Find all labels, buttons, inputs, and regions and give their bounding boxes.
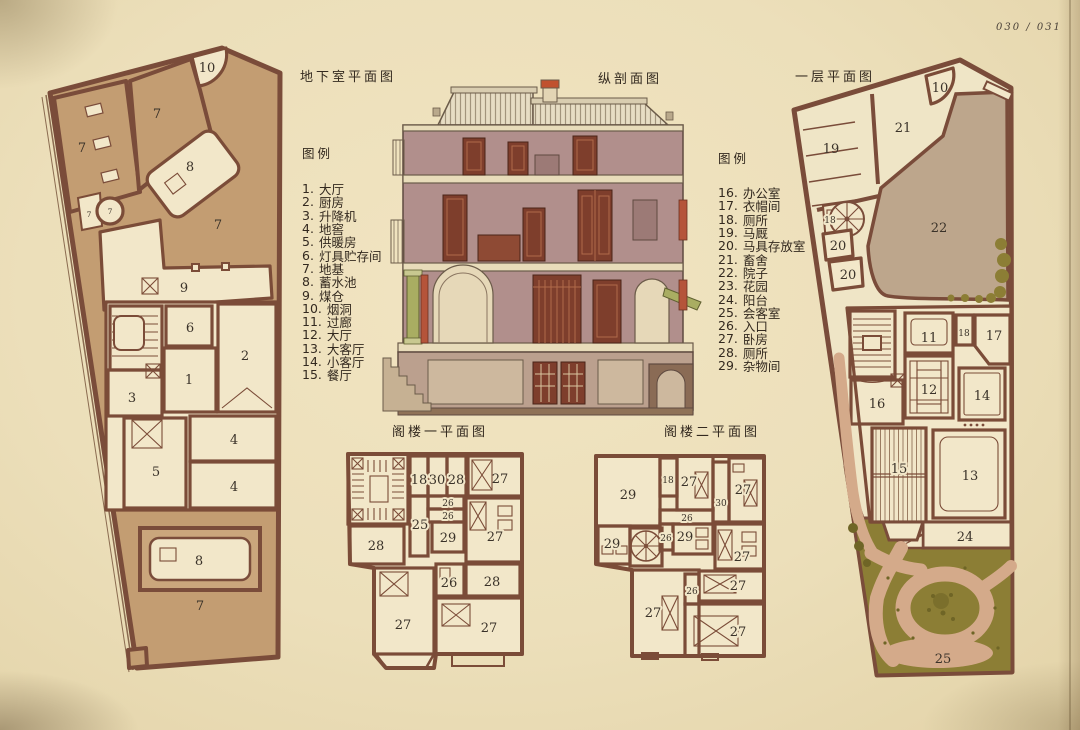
room-number-label: 11 xyxy=(921,331,938,346)
room-number-label: 26 xyxy=(442,499,454,509)
room-number-label: 7 xyxy=(87,210,92,219)
room-number-label: 30 xyxy=(429,473,446,488)
room-number-label: 27 xyxy=(395,618,412,633)
room-number-label: 18 xyxy=(411,473,428,488)
room-number-label: 4 xyxy=(230,480,238,495)
room-number-label: 28 xyxy=(484,575,501,590)
first-floor-plan-figure: 10 21 19 18 20 20 22 11 18 17 12 16 14 1… xyxy=(793,48,1080,708)
room-number-label: 8 xyxy=(186,160,194,175)
basement-vault-arch xyxy=(649,364,693,414)
legend-left-items: 1.大厅 2.厨房 3.升降机 4.地窖 5.供暖房 6.灯具贮存间 7.地基 … xyxy=(302,182,381,381)
room-number-label: 5 xyxy=(152,465,160,480)
room-number-label: 26 xyxy=(686,587,698,597)
room-number-label: 18 xyxy=(824,216,836,226)
legend-item-number: 29. xyxy=(718,358,738,373)
room-number-label: 7 xyxy=(108,207,113,216)
scan-shading-bottom-left xyxy=(0,670,140,730)
room-number-label: 27 xyxy=(730,579,747,594)
room-number-label: 10 xyxy=(199,61,216,76)
book-page: 030 / 031 地下室平面图 纵剖面图 一层平面图 阁楼一平面图 阁楼二平面… xyxy=(0,0,1080,730)
room-number-label: 29 xyxy=(604,537,621,552)
room-number-label: 17 xyxy=(986,329,1003,344)
attic1-plan-figure: 18 30 28 27 26 26 25 29 27 28 26 28 27 2… xyxy=(336,446,536,676)
basement-plan-figure: 10 7 7 8 7 7 7 9 6 2 1 3 5 4 4 8 7 xyxy=(42,40,292,670)
roof xyxy=(433,80,673,125)
room-number-label: 26 xyxy=(441,576,458,591)
room-number-label: 22 xyxy=(931,221,948,236)
room-number-label: 15 xyxy=(891,462,908,477)
room-number-label: 19 xyxy=(823,142,840,157)
room-number-label: 29 xyxy=(620,488,637,503)
room-number-label: 26 xyxy=(681,514,693,524)
room-number-label: 26 xyxy=(442,512,454,522)
green-column xyxy=(404,270,422,344)
title-basement-plan: 地下室平面图 xyxy=(300,66,396,85)
room-number-label: 27 xyxy=(492,472,509,487)
room-number-label: 28 xyxy=(448,473,465,488)
room-number-label: 14 xyxy=(974,389,991,404)
room-number-label: 7 xyxy=(153,107,161,122)
legend-item: 15.餐厅 xyxy=(302,368,381,381)
room-number-label: 12 xyxy=(921,383,938,398)
room-number-label: 24 xyxy=(957,530,974,545)
title-attic2-plan: 阁楼二平面图 xyxy=(664,421,760,440)
room-number-label: 21 xyxy=(895,121,912,136)
room-number-label: 4 xyxy=(230,433,238,448)
legend-left: 图例 1.大厅 2.厨房 3.升降机 4.地窖 5.供暖房 6.灯具贮存间 7.… xyxy=(302,143,381,381)
roof-finial xyxy=(433,108,440,116)
legend-left-title: 图例 xyxy=(302,143,381,162)
room-number-label: 27 xyxy=(735,483,752,498)
room-number-label: 27 xyxy=(734,550,751,565)
room-number-label: 16 xyxy=(869,397,886,412)
room-number-label: 7 xyxy=(78,141,86,156)
room-number-label: 27 xyxy=(481,621,498,636)
room-number-label: 3 xyxy=(128,391,136,406)
room-number-label: 27 xyxy=(645,606,662,621)
room-number-label: 20 xyxy=(830,239,847,254)
room-number-label: 18 xyxy=(662,476,674,486)
room-number-label: 7 xyxy=(196,599,204,614)
basement-level xyxy=(398,352,693,415)
room-number-label: 9 xyxy=(180,281,188,296)
room-number-label: 29 xyxy=(677,530,694,545)
room-number-label: 7 xyxy=(214,218,222,233)
room-number-label: 13 xyxy=(962,469,979,484)
room-number-label: 25 xyxy=(412,518,429,533)
attic2-plan-figure: 29 18 27 30 27 26 29 26 29 27 27 26 27 2… xyxy=(582,446,792,676)
room-number-label: 25 xyxy=(935,652,952,667)
legend-item-label: 杂物间 xyxy=(743,356,781,375)
room-number-label: 2 xyxy=(241,349,249,364)
bay-window xyxy=(883,522,923,540)
room-number-label: 26 xyxy=(660,534,672,544)
room-number-label: 27 xyxy=(730,625,747,640)
room-number-label: 6 xyxy=(186,321,194,336)
room-number-label: 28 xyxy=(368,539,385,554)
room-number-label: 20 xyxy=(840,268,857,283)
room-number-label: 10 xyxy=(932,81,949,96)
legend-item-number: 15. xyxy=(302,367,322,382)
page-number: 030 / 031 xyxy=(996,22,1062,33)
room-number-label: 29 xyxy=(440,531,457,546)
section-figure xyxy=(383,80,703,420)
site-step-bottom xyxy=(128,648,147,668)
room-number-label: 1 xyxy=(185,373,193,388)
roof-finial xyxy=(666,112,673,120)
room-number-label: 27 xyxy=(487,530,504,545)
title-attic1-plan: 阁楼一平面图 xyxy=(392,421,488,440)
room-number-label: 27 xyxy=(681,475,698,490)
chimney xyxy=(541,80,559,102)
room-number-label: 18 xyxy=(958,329,970,339)
legend-item-label: 餐厅 xyxy=(327,365,352,384)
room-number-label: 8 xyxy=(195,554,203,569)
foundation-line xyxy=(398,408,693,415)
room-number-label: 30 xyxy=(715,499,727,509)
